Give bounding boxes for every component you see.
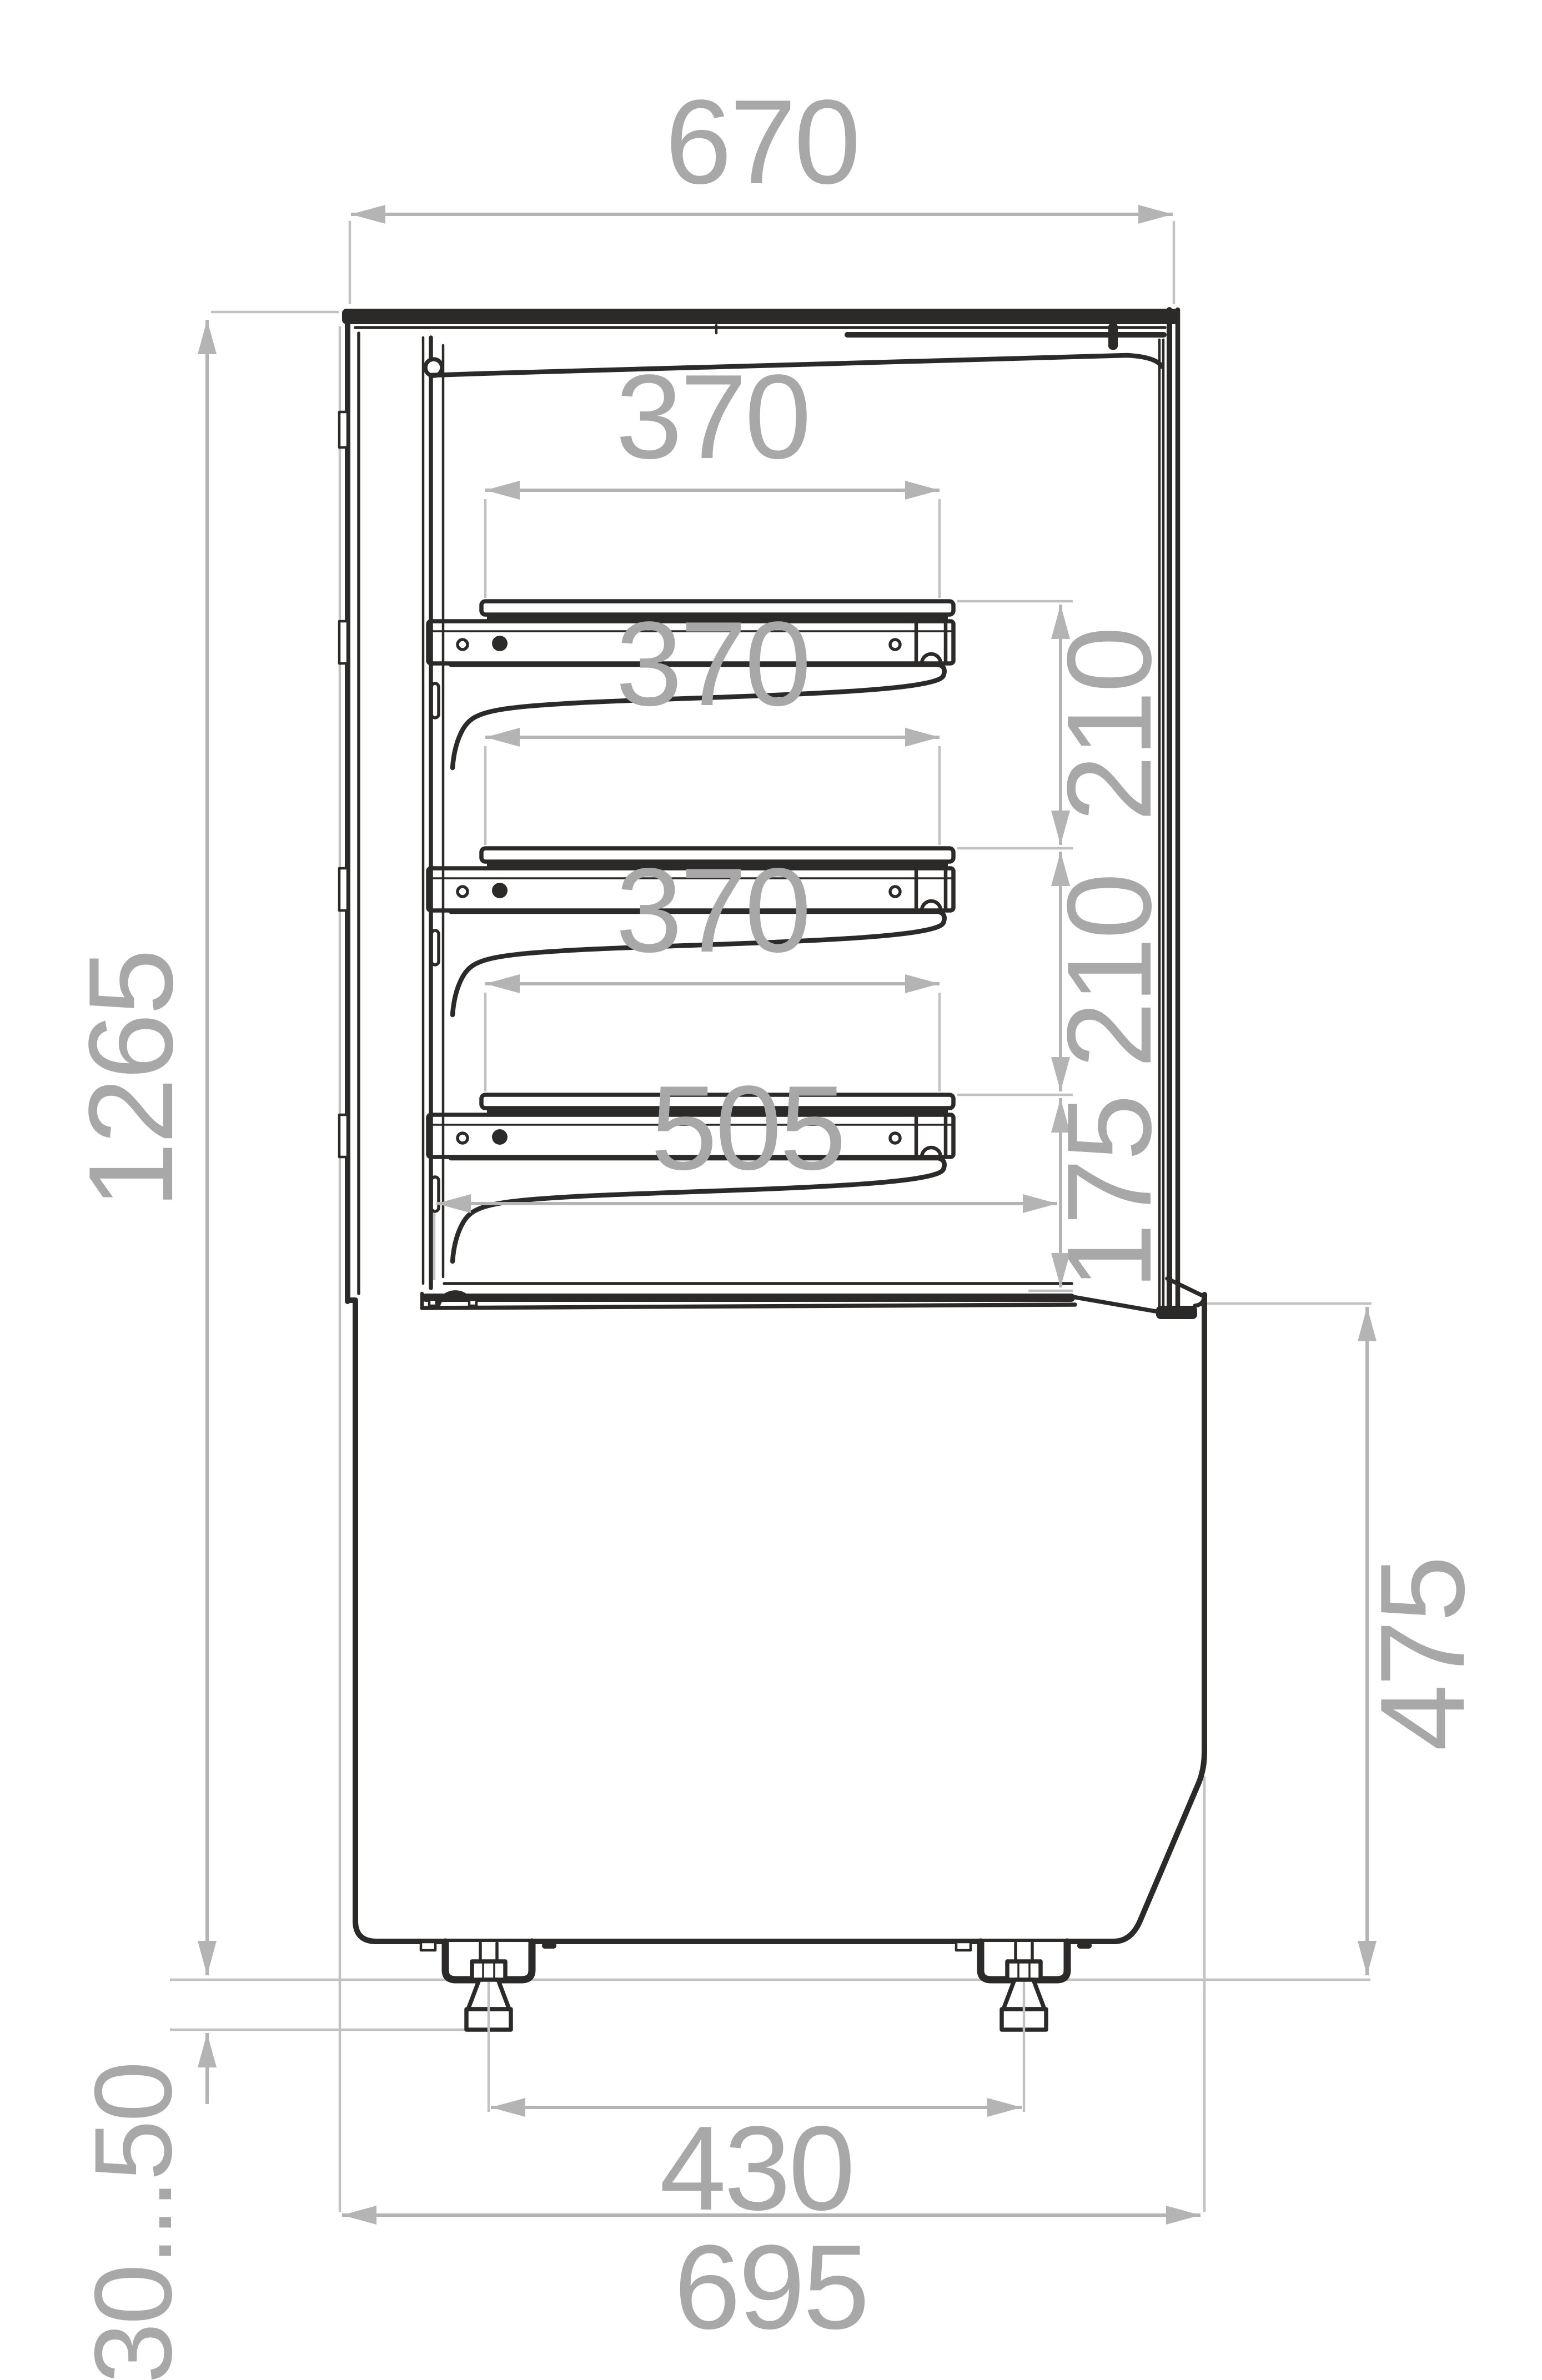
dim-label-210-1: 210 (1042, 628, 1176, 822)
dimension-lines (207, 214, 1367, 2215)
lamp-bracket (1108, 323, 1118, 350)
dim-label-30-50: 30...50 (72, 2063, 194, 2380)
dim-label-695: 695 (674, 2220, 867, 2354)
dim-label-370-1: 370 (616, 349, 809, 484)
base-cabinet (348, 1295, 1204, 1941)
drawing-page: 670 370 370 370 505 430 695 1265 210 210… (0, 0, 1542, 2380)
dim-label-175: 175 (1042, 1096, 1176, 1290)
display-case-section-drawing: 670 370 370 370 505 430 695 1265 210 210… (0, 0, 1542, 2380)
dimension-labels: 670 370 370 370 505 430 695 1265 210 210… (63, 74, 1489, 2380)
dim-label-475: 475 (1355, 1558, 1489, 1751)
dim-label-1265: 1265 (63, 951, 198, 1209)
dim-label-670: 670 (665, 74, 858, 209)
dim-label-370-3: 370 (616, 843, 809, 977)
dim-label-370-2: 370 (616, 596, 809, 731)
dim-label-505: 505 (651, 1060, 844, 1195)
dim-label-430: 430 (660, 2101, 853, 2235)
counter-top (342, 309, 1179, 324)
dim-label-210-2: 210 (1042, 875, 1176, 1068)
